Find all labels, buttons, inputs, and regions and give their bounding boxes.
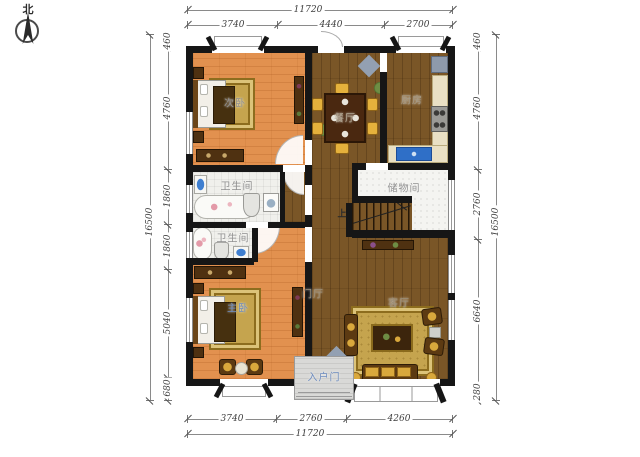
- bay-opening: [212, 46, 264, 53]
- window: [186, 185, 193, 213]
- coffee-table: [371, 324, 413, 352]
- pillow: [200, 300, 208, 311]
- room-label-dining: 餐厅: [334, 110, 356, 125]
- window: [186, 232, 193, 258]
- bed-headboard: [193, 296, 198, 344]
- dim-top-seg: 4440: [318, 20, 345, 30]
- dim-right-seg: 6640: [473, 298, 483, 325]
- toilet: [243, 193, 260, 217]
- door-opening: [305, 227, 312, 262]
- room-label-bathroom-bottom: 卫生间: [217, 230, 250, 245]
- dining-chair: [367, 122, 378, 135]
- bay-window: [398, 36, 444, 47]
- door-opening: [366, 163, 388, 170]
- dim-tick: [146, 34, 154, 35]
- dim-tick: [492, 400, 500, 401]
- dim-tick: [452, 415, 453, 423]
- wall-bedroom-bath: [186, 165, 283, 172]
- wall-divider: [305, 215, 312, 227]
- washing-machine: [263, 193, 279, 212]
- bay-opening: [396, 46, 446, 53]
- dim-tick: [452, 6, 453, 14]
- wall-bath-right: [252, 222, 258, 262]
- dim-tick: [164, 400, 172, 401]
- wardrobe: [194, 266, 246, 279]
- dim-tick: [187, 430, 188, 438]
- dim-right-seg: 2760: [473, 191, 483, 218]
- dining-chair: [312, 98, 323, 111]
- nightstand: [193, 131, 204, 143]
- pillow: [200, 106, 208, 117]
- room-label-living: 客厅: [388, 295, 410, 310]
- porch-step: [298, 392, 350, 393]
- window: [448, 300, 455, 340]
- pillow: [200, 323, 208, 334]
- dim-tick: [492, 34, 500, 35]
- dim-line-left-segments: [168, 35, 169, 401]
- dim-left-seg: 5040: [163, 310, 173, 337]
- chaise: [344, 314, 358, 356]
- dim-tick: [452, 430, 453, 438]
- dim-left-seg: 460: [163, 30, 173, 51]
- wall-storage-top: [388, 163, 455, 170]
- sofa-cushion: [397, 367, 411, 377]
- door-swing-arc: [321, 31, 343, 47]
- armchair: [246, 359, 263, 375]
- dresser: [196, 149, 244, 162]
- room-label-secondary-bedroom: 次卧: [224, 95, 246, 110]
- armchair: [219, 359, 236, 375]
- window: [448, 255, 455, 293]
- terrace-door-opening: [318, 46, 344, 53]
- side-table: [235, 362, 248, 375]
- bay-window: [222, 386, 266, 397]
- dim-left-total: 16500: [145, 206, 155, 239]
- dining-chair: [367, 98, 378, 111]
- dim-line-right-segments: [478, 35, 479, 401]
- room-label-storage: 储物间: [388, 180, 421, 195]
- dim-bottom-seg: 2760: [298, 414, 325, 424]
- dim-tick: [187, 21, 188, 29]
- dim-bottom-total: 11720: [294, 429, 327, 439]
- floor-storage-right: [412, 196, 448, 230]
- room-label-kitchen: 厨房: [401, 92, 423, 107]
- room-label-master-bedroom: 主卧: [227, 300, 249, 315]
- dim-tick: [164, 269, 172, 270]
- dim-left-seg: 4760: [163, 95, 173, 122]
- dim-top-seg: 3740: [220, 20, 247, 30]
- dim-tick: [474, 239, 482, 240]
- dim-top-seg: 2700: [405, 20, 432, 30]
- nightstand: [193, 67, 204, 79]
- wall-divider: [305, 165, 312, 185]
- dim-tick: [277, 21, 278, 29]
- floor-plan-page: 北: [0, 0, 640, 457]
- dim-tick: [474, 169, 482, 170]
- wall-storage-bottom: [352, 230, 455, 238]
- dim-tick: [452, 21, 453, 29]
- pillow: [200, 84, 208, 95]
- wall-kitchen-left: [380, 72, 387, 170]
- door-opening: [380, 53, 387, 72]
- sofa-cushion: [381, 367, 395, 377]
- bathroom-vanity: [194, 175, 207, 194]
- dining-chair: [335, 143, 349, 154]
- dim-tick: [384, 21, 385, 29]
- wall-bath-divider: [268, 222, 305, 228]
- bay-window: [214, 36, 262, 47]
- sofa-cushion: [365, 367, 379, 377]
- window: [186, 298, 193, 342]
- door-opening: [283, 165, 305, 172]
- dim-right-seg: 4760: [473, 95, 483, 122]
- nightstand: [193, 347, 204, 358]
- door-opening: [305, 185, 312, 215]
- window: [186, 112, 193, 154]
- dining-chair: [312, 122, 323, 135]
- dim-tick: [164, 224, 172, 225]
- bay-opening: [352, 379, 440, 386]
- dim-left-seg: 1860: [163, 183, 173, 210]
- bow-window: [354, 386, 438, 402]
- dim-top-total: 11720: [292, 5, 325, 15]
- dim-bottom-seg: 3740: [219, 414, 246, 424]
- wall-divider: [305, 53, 312, 140]
- wall-stairs-top: [352, 196, 412, 203]
- dim-right-total: 16500: [491, 206, 501, 239]
- wall-master-top: [186, 258, 254, 265]
- dim-tick: [146, 400, 154, 401]
- room-label-foyer: 门厅: [302, 286, 324, 301]
- armchair: [423, 337, 445, 357]
- fridge: [431, 56, 448, 73]
- window: [448, 180, 455, 230]
- dim-tick: [346, 415, 347, 423]
- dim-left-seg: 1860: [163, 233, 173, 260]
- dim-right-seg: 280: [473, 381, 483, 402]
- stove: [431, 106, 448, 132]
- side-table: [429, 327, 441, 338]
- desk: [294, 76, 304, 124]
- door-opening: [246, 222, 268, 228]
- dim-left-seg: 680: [163, 377, 173, 398]
- dim-bottom-seg: 4260: [386, 414, 413, 424]
- stairs-up-label: 上: [337, 207, 346, 220]
- dim-tick: [187, 6, 188, 14]
- kitchen-sink: [396, 147, 432, 161]
- wall-bath-divider: [186, 222, 246, 228]
- dim-tick: [164, 169, 172, 170]
- dim-right-seg: 460: [473, 30, 483, 51]
- wall-bath-right: [280, 172, 285, 225]
- console-table: [362, 240, 414, 250]
- room-label-bathroom-top: 卫生间: [221, 178, 254, 193]
- dim-tick: [276, 415, 277, 423]
- bathtub: [193, 227, 212, 260]
- armchair: [421, 307, 443, 327]
- room-label-entrance: 入户门: [308, 369, 341, 384]
- dim-tick: [187, 415, 188, 423]
- nightstand: [193, 283, 204, 294]
- bed-headboard: [193, 80, 198, 128]
- door-opening: [305, 140, 312, 165]
- porch-step: [296, 396, 352, 397]
